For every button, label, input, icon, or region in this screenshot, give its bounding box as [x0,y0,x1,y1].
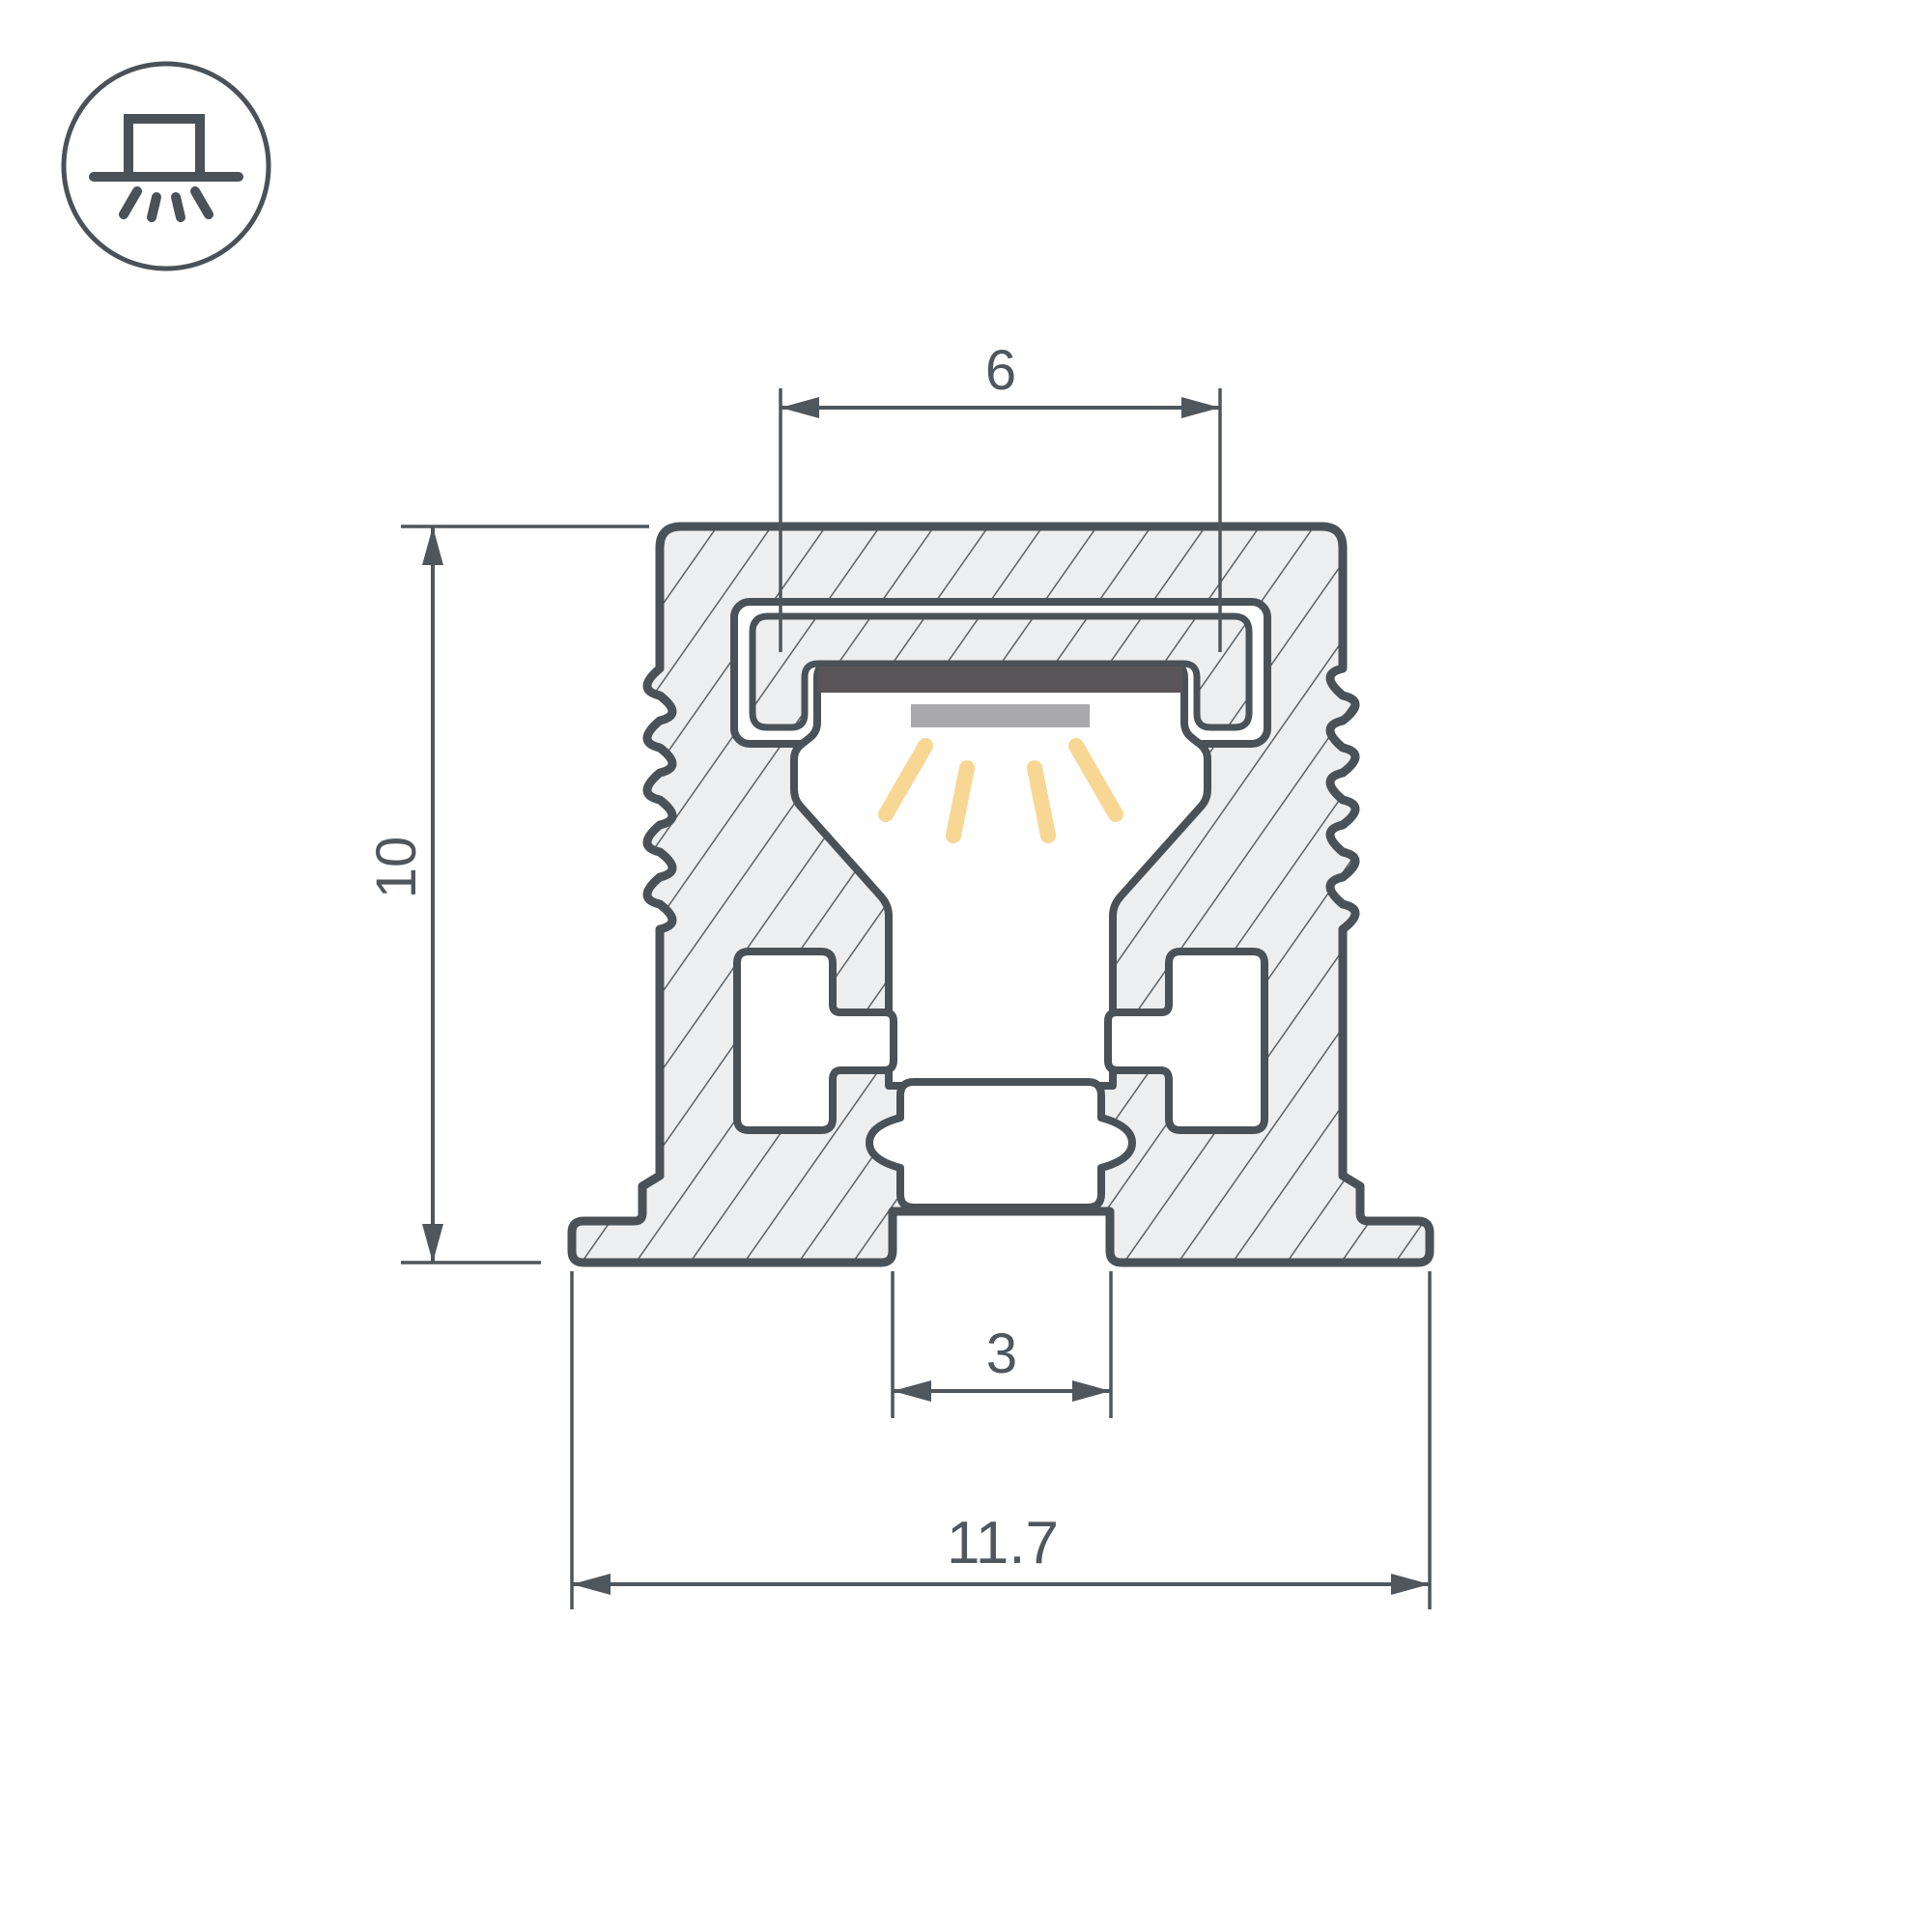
dimension-label-slot-width: 3 [986,1322,1017,1385]
dimension-label-overall-width: 11.7 [947,1510,1059,1577]
arrowhead-right [1072,1380,1111,1402]
dimension-label-top-width: 6 [985,339,1016,402]
dimension-profile-height: 10 [365,526,649,1263]
arrowhead-top [422,526,443,565]
led-profile-cross-section-drawing: 6 10 3 11.7 [0,0,1932,1932]
dimension-bottom-slot-width: 3 [893,1271,1111,1418]
arrowhead-left [781,397,819,418]
technical-drawing-canvas: 6 10 3 11.7 [0,0,1932,1932]
arrowhead-left [893,1380,931,1402]
led-strip-pcb-bar [818,667,1182,693]
icon-light-rays [124,191,209,217]
arrowhead-right [1181,397,1220,418]
dimension-label-height: 10 [365,837,428,899]
bottom-slot-channel [869,1082,1132,1207]
arrowhead-bottom [422,1224,443,1263]
arrowhead-left [572,1574,611,1595]
surface-mount-downlight-icon [64,64,269,269]
arrowhead-right [1391,1574,1430,1595]
led-emitter-bar [911,704,1090,727]
icon-circle-border [64,64,269,269]
